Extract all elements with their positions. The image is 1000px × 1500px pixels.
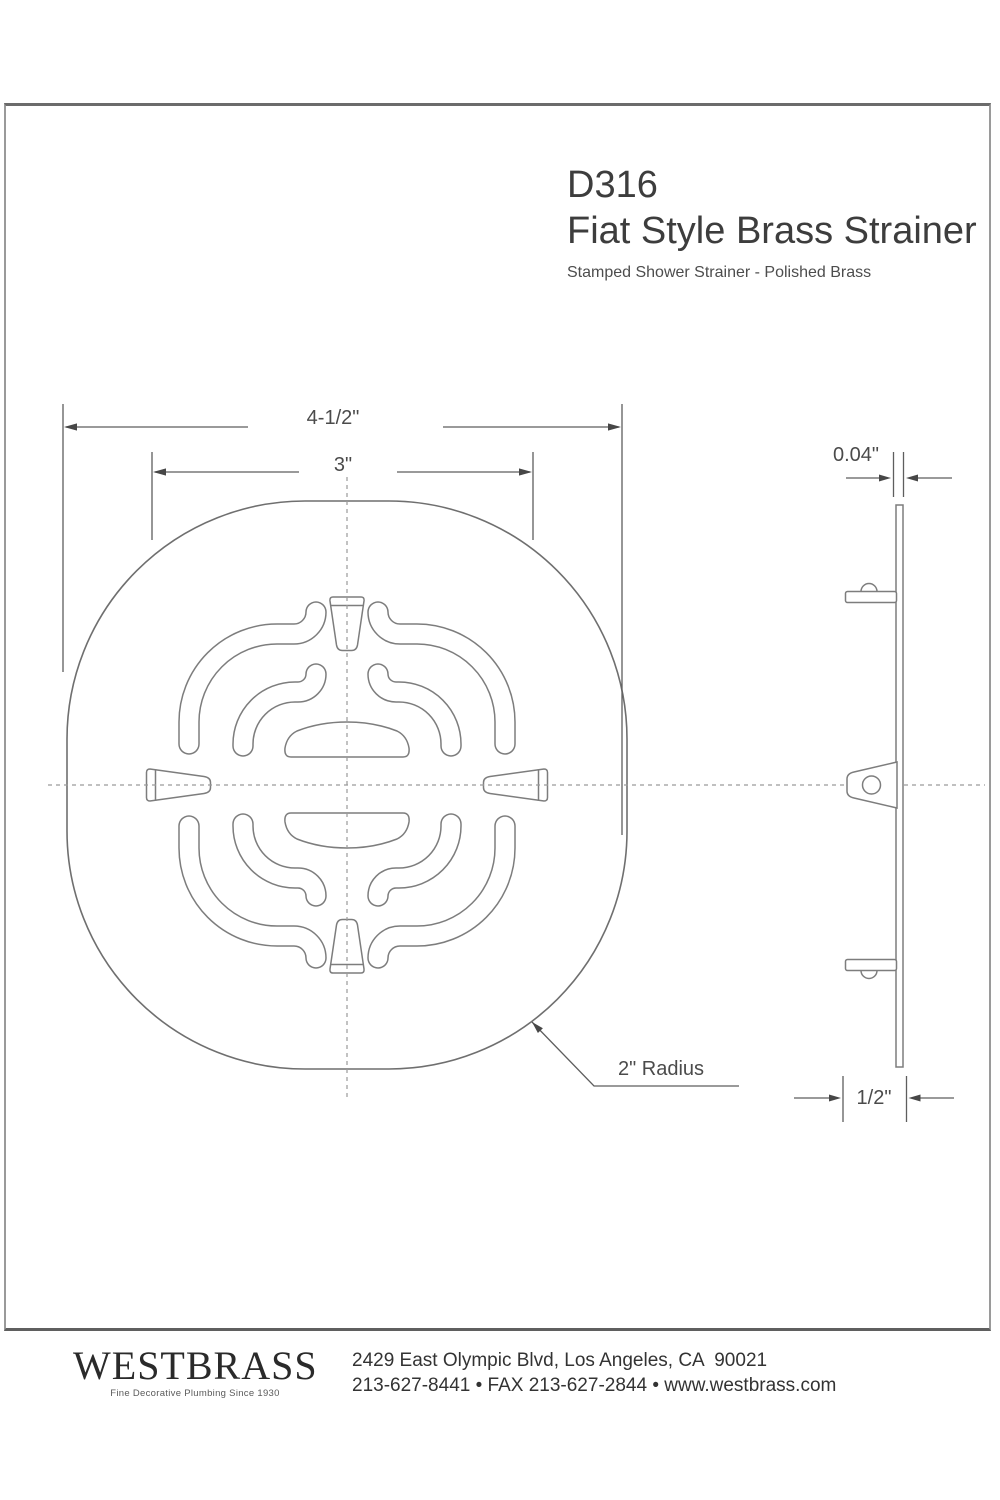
- product-subtitle: Stamped Shower Strainer - Polished Brass: [567, 263, 977, 283]
- dim-thickness: 0.04": [801, 444, 911, 466]
- address-line: 2429 East Olympic Blvd, Los Angeles, CA …: [352, 1348, 836, 1373]
- title-block: D316 Fiat Style Brass Strainer Stamped S…: [567, 162, 977, 283]
- brand-logo: WESTBRASS Fine Decorative Plumbing Since…: [73, 1346, 317, 1399]
- brand-tagline: Fine Decorative Plumbing Since 1930: [73, 1388, 317, 1399]
- screw-hole: [863, 776, 881, 794]
- dim-depth: 1/2": [834, 1087, 914, 1109]
- dim-corner-radius: 2" Radius: [586, 1058, 736, 1080]
- dim-inner-width: 3": [303, 454, 383, 476]
- product-name: Fiat Style Brass Strainer: [567, 208, 977, 254]
- side-view: [846, 505, 904, 1067]
- contact-info: 2429 East Olympic Blvd, Los Angeles, CA …: [352, 1348, 836, 1398]
- brand-name: WESTBRASS: [73, 1346, 317, 1386]
- model-number: D316: [567, 162, 977, 208]
- dim-overall-width: 4-1/2": [253, 407, 413, 429]
- phone-line: 213-627-8441 • FAX 213-627-2844 • www.we…: [352, 1373, 836, 1398]
- dimension-lines: [63, 404, 954, 1122]
